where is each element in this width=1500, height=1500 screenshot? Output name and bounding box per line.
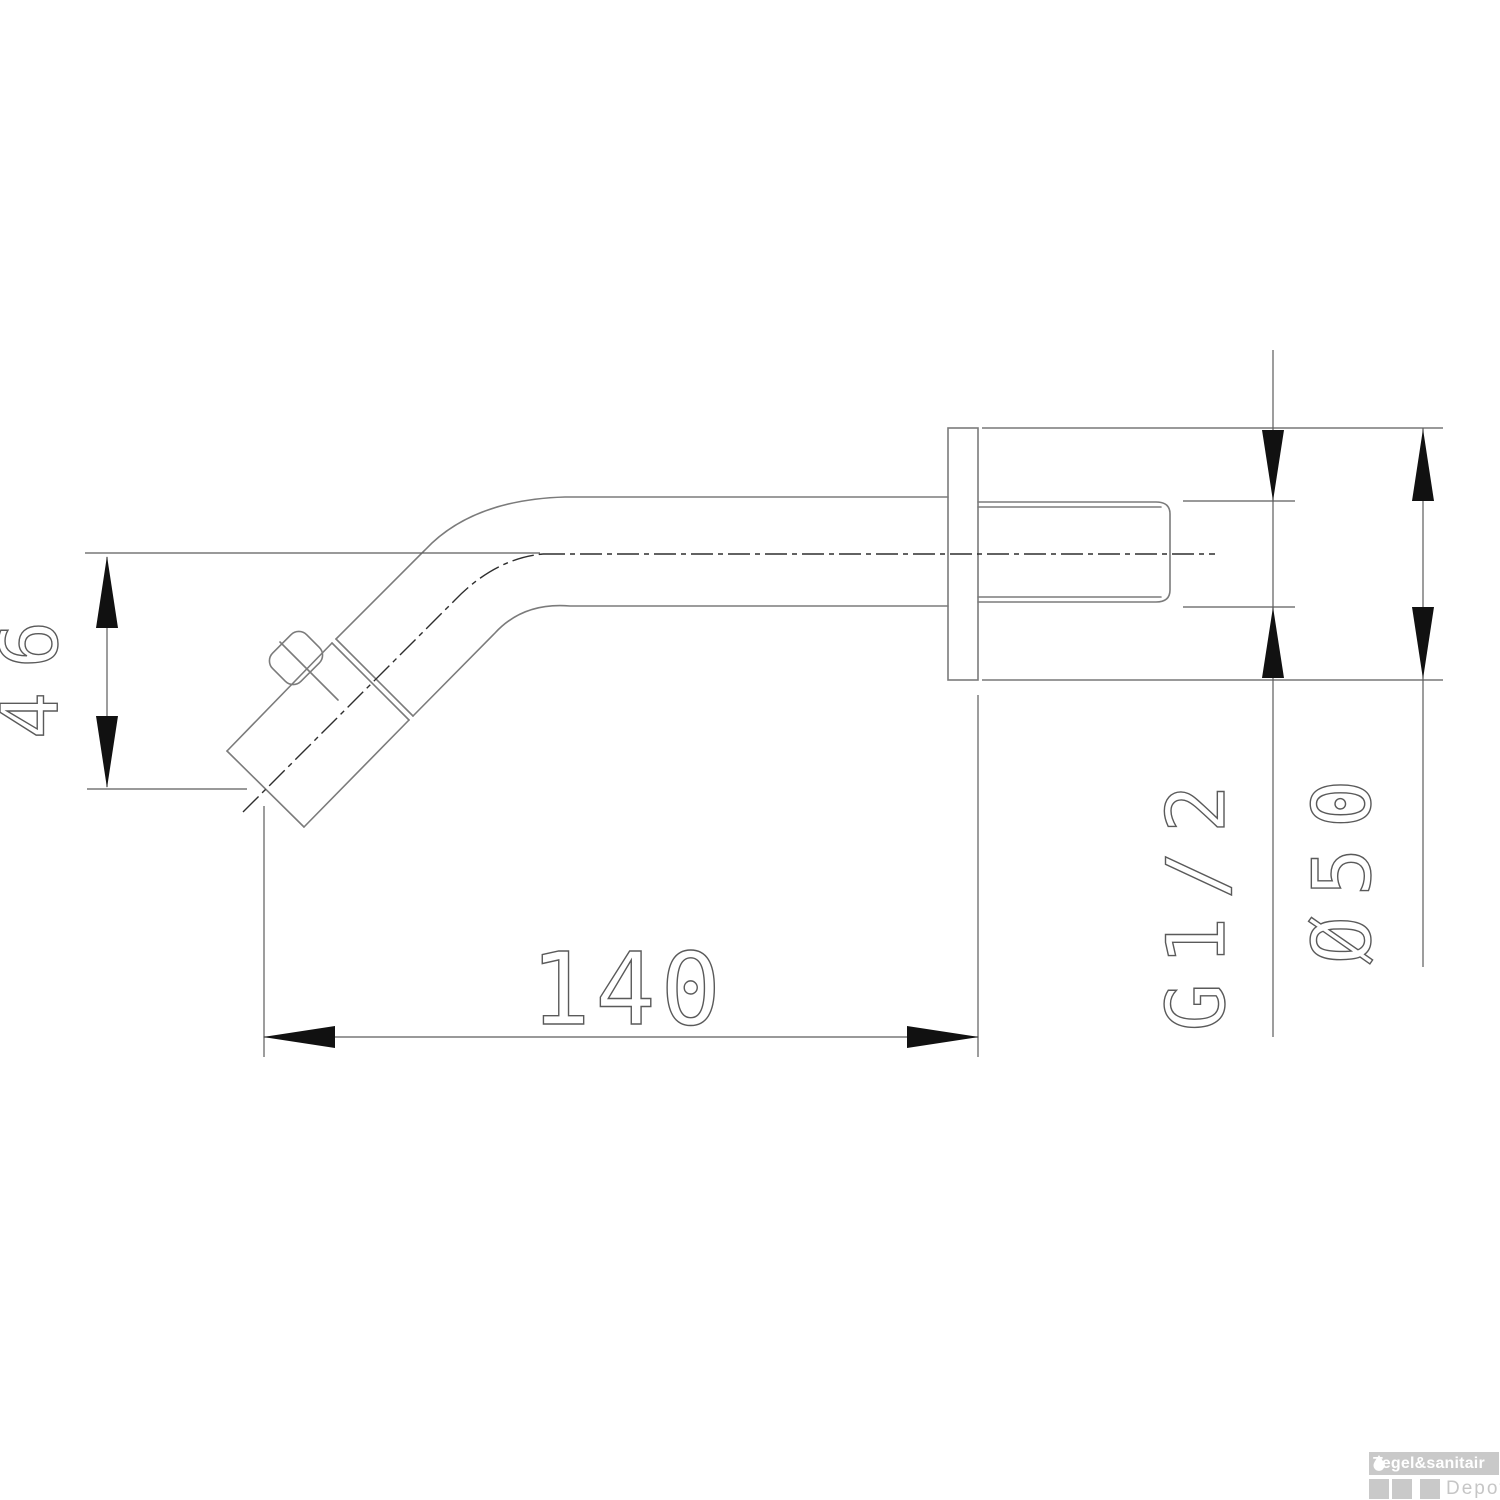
technical-drawing: 46 140 G1/2 Ø50 [0, 0, 1500, 1500]
logo-tiles-row: Depot [1369, 1478, 1499, 1499]
arrow-140-right [907, 1026, 979, 1048]
logo-drop-tile [1369, 1479, 1389, 1499]
dimension-labels: 46 140 G1/2 Ø50 [0, 597, 1389, 1048]
dim-label-g12: G1/2 [1150, 767, 1243, 1032]
arrow-g12-down [1262, 430, 1284, 501]
arrow-140-left [263, 1026, 335, 1048]
coupling-line-outer [332, 643, 409, 720]
watermark-logo: Tegel&sanitair Depot [1369, 1452, 1499, 1499]
logo-brand-text: Tegel&sanitair [1373, 1455, 1485, 1472]
spout-body [227, 428, 1170, 827]
head-upper-edge [227, 643, 332, 751]
thread-stub-outline [978, 502, 1170, 602]
logo-tile [1420, 1479, 1440, 1499]
tube-lower-outline [413, 606, 948, 716]
dim-label-d50: Ø50 [1296, 760, 1389, 965]
arrow-d50-up [1412, 429, 1434, 501]
dim-label-140: 140 [530, 931, 726, 1048]
centerlines [243, 554, 1215, 812]
head-lower-edge [304, 720, 409, 827]
logo-sub-text: Depot [1446, 1479, 1500, 1499]
tube-upper-outline [336, 497, 948, 639]
head-facet-edge [280, 642, 338, 700]
arrow-g12-up [1262, 607, 1284, 678]
arrow-d50-down [1412, 607, 1434, 679]
drawing-canvas: 46 140 G1/2 Ø50 Tegel&sanitair Depot [0, 0, 1500, 1500]
coupling-line-inner [336, 639, 413, 716]
arrow-46-down [96, 716, 118, 788]
arrow-46-up [96, 556, 118, 628]
water-drop-icon [1369, 1452, 1389, 1472]
dim-label-46: 46 [0, 597, 76, 739]
logo-tile [1392, 1479, 1412, 1499]
